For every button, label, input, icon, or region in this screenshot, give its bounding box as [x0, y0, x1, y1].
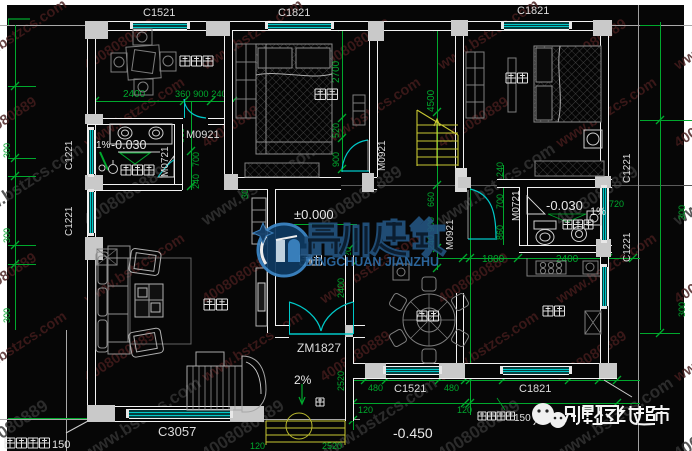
- svg-text:M0921: M0921: [377, 140, 388, 171]
- svg-text:C1521: C1521: [394, 383, 426, 395]
- svg-text:2%: 2%: [294, 373, 312, 387]
- svg-text:700: 700: [495, 194, 505, 209]
- svg-text:M0921: M0921: [186, 129, 220, 141]
- svg-text:C1221: C1221: [622, 153, 633, 183]
- svg-text:1800: 1800: [482, 254, 505, 265]
- svg-text:±0.000: ±0.000: [294, 207, 334, 222]
- svg-text:150: 150: [514, 413, 531, 424]
- svg-text:C1221: C1221: [64, 206, 75, 236]
- svg-text:300: 300: [2, 228, 12, 243]
- svg-text:1%: 1%: [590, 206, 606, 218]
- svg-text:2400: 2400: [336, 278, 346, 298]
- svg-text:-0.450: -0.450: [393, 425, 433, 441]
- svg-text:4500: 4500: [426, 89, 437, 112]
- svg-text:C1821: C1821: [517, 5, 549, 17]
- svg-text:720: 720: [609, 199, 624, 209]
- svg-text:1%: 1%: [96, 140, 111, 151]
- svg-text:C1821: C1821: [519, 383, 551, 395]
- svg-text:-0.030: -0.030: [546, 198, 583, 213]
- svg-text:120: 120: [250, 441, 265, 451]
- svg-text:480: 480: [368, 383, 383, 393]
- svg-text:C1521: C1521: [143, 7, 175, 19]
- svg-text:120: 120: [358, 405, 373, 415]
- svg-text:-0.030: -0.030: [111, 138, 146, 152]
- svg-text:M0721: M0721: [160, 146, 171, 177]
- svg-text:2520: 2520: [336, 371, 346, 391]
- svg-text:300: 300: [677, 205, 687, 220]
- svg-text:120: 120: [457, 405, 472, 415]
- svg-text:150: 150: [52, 439, 70, 451]
- svg-text:300: 300: [677, 302, 687, 317]
- svg-text:300: 300: [2, 308, 12, 323]
- svg-text:M0721: M0721: [511, 190, 522, 221]
- svg-text:240: 240: [495, 162, 505, 177]
- svg-text:ZM1827: ZM1827: [297, 341, 341, 355]
- svg-text:300: 300: [2, 143, 12, 158]
- svg-text:C1221: C1221: [64, 140, 75, 170]
- svg-text:700: 700: [191, 152, 201, 167]
- svg-text:M0921: M0921: [445, 219, 456, 250]
- svg-text:DINGCHUAN JIANZHU: DINGCHUAN JIANZHU: [305, 255, 439, 269]
- svg-text:C1221: C1221: [622, 232, 633, 262]
- svg-text:660: 660: [426, 192, 436, 207]
- svg-text:480: 480: [444, 383, 459, 393]
- svg-text:2700: 2700: [331, 60, 342, 83]
- svg-text:C3057: C3057: [158, 424, 196, 439]
- svg-text:360 900 240: 360 900 240: [175, 89, 227, 99]
- svg-text:C1821: C1821: [278, 7, 310, 19]
- svg-text:2400: 2400: [556, 254, 579, 265]
- svg-text:240: 240: [191, 174, 201, 189]
